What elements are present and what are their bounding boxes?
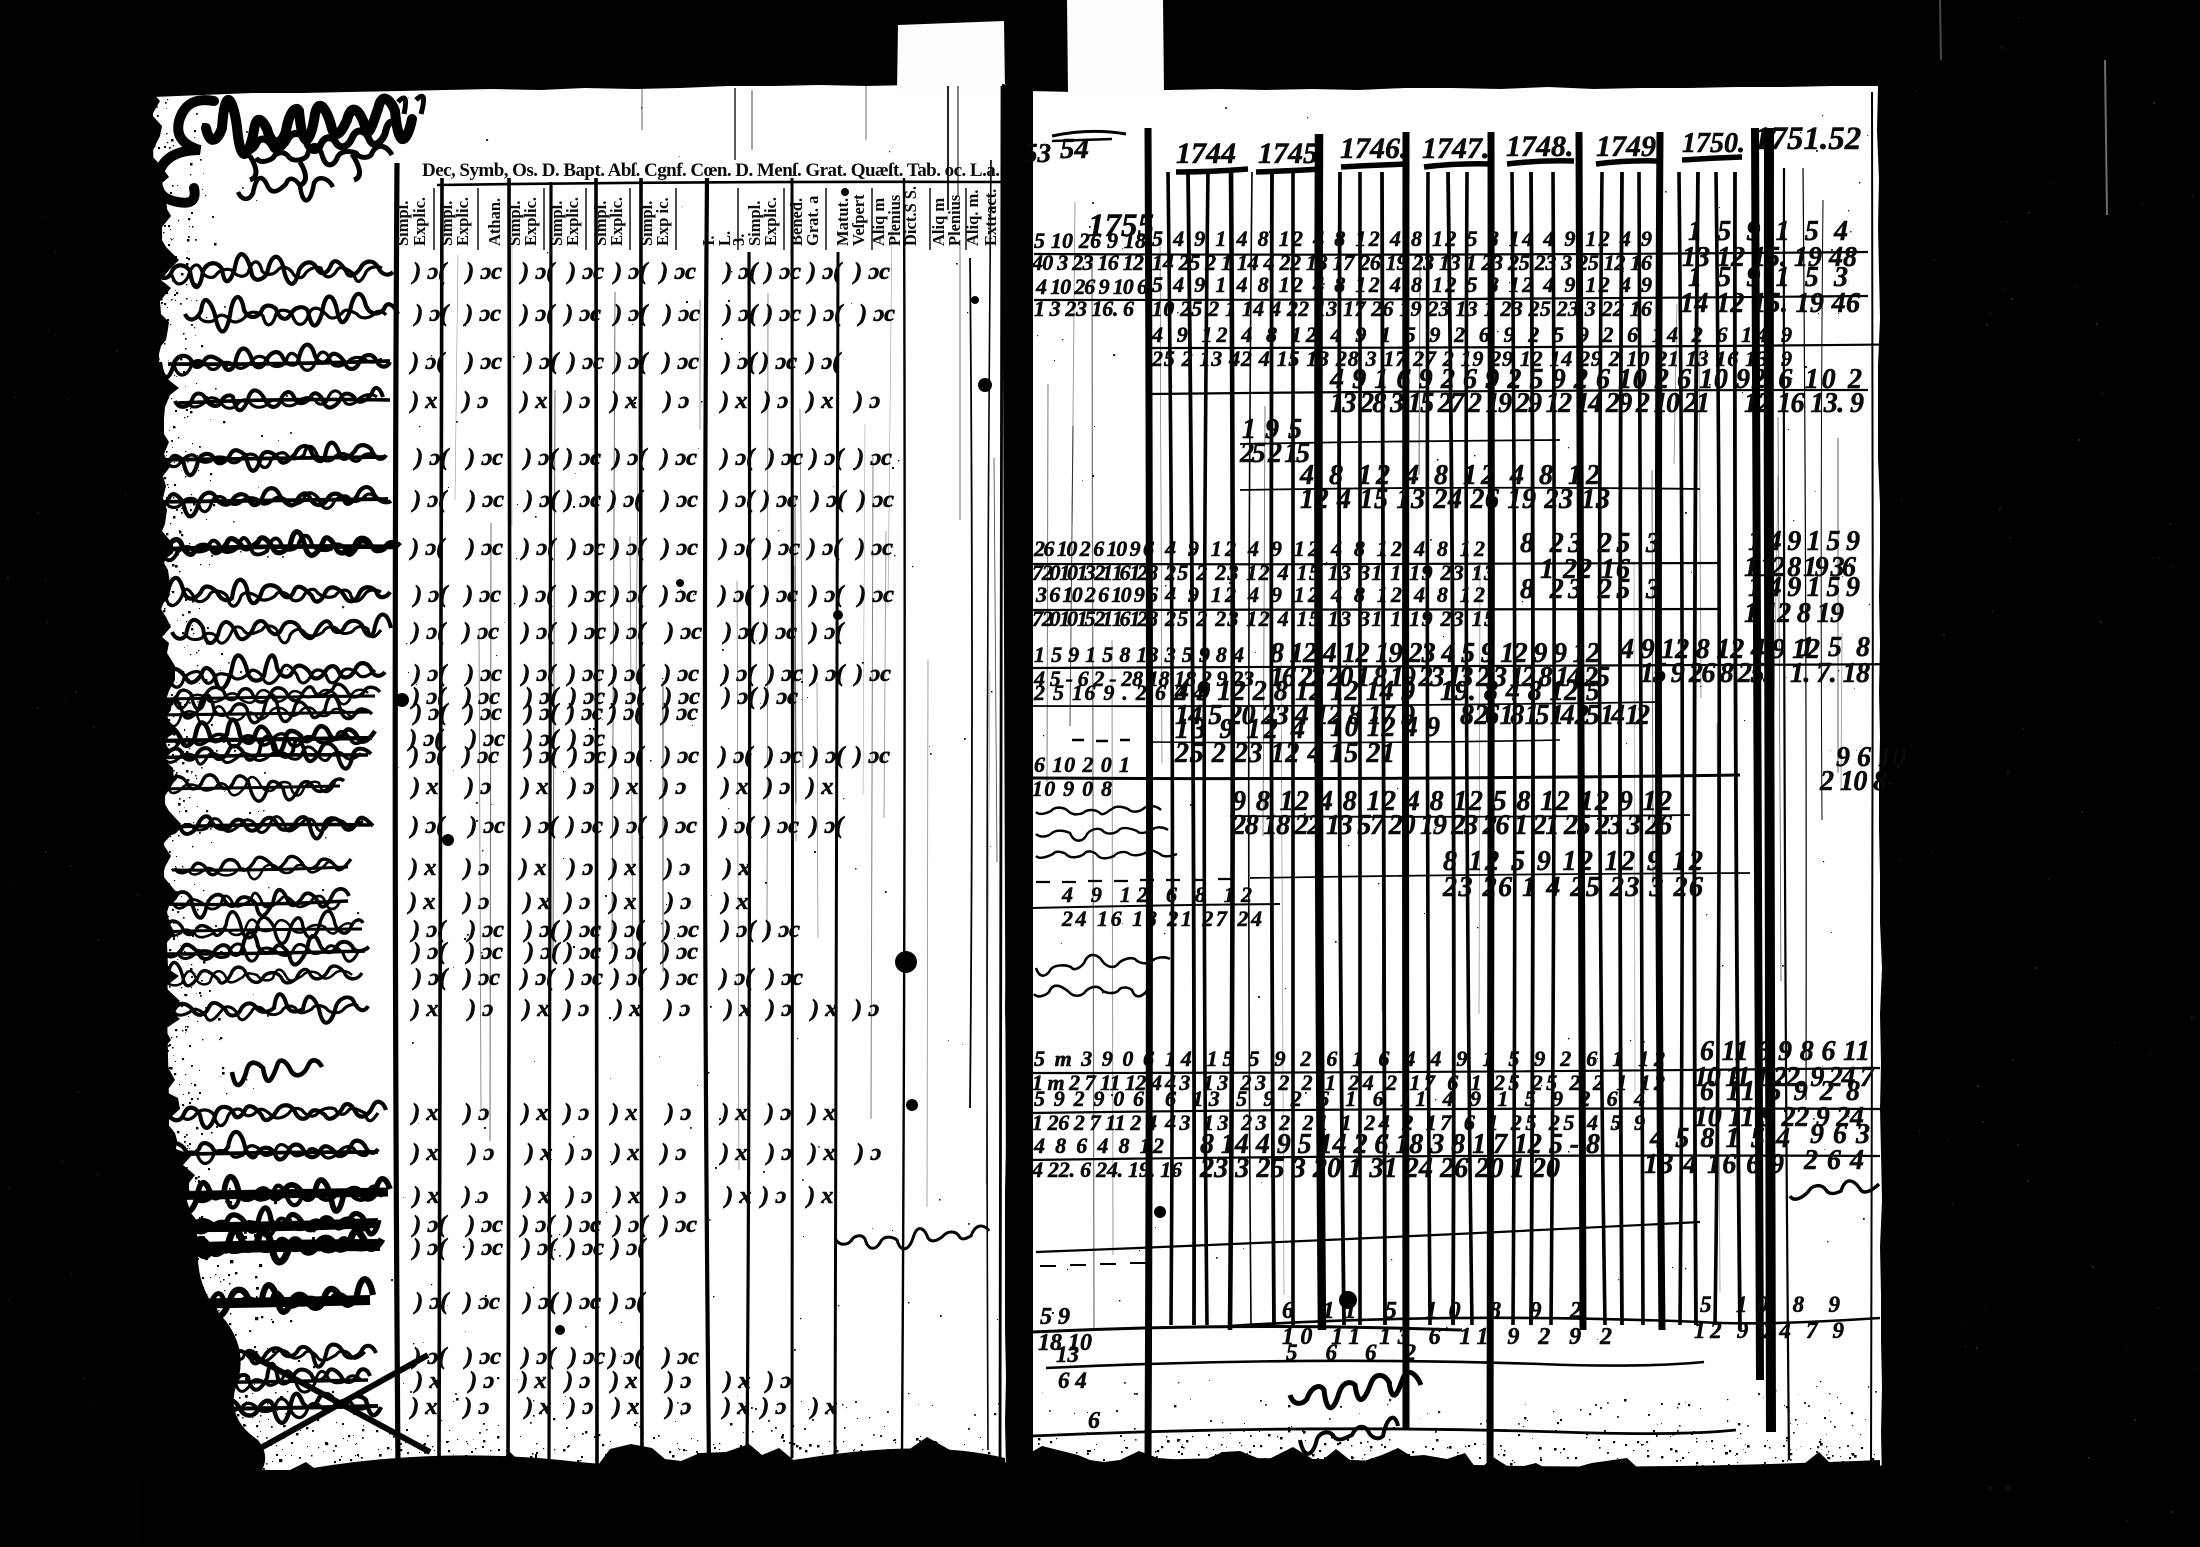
svg-text:1750.: 1750. [1682, 128, 1745, 159]
svg-text:) ɔc: ) ɔc [568, 742, 606, 769]
svg-text:) ɔ(: ) ɔ( [612, 258, 649, 285]
svg-text:) x: ) x [805, 1182, 834, 1209]
svg-text:6 10 2 0 1: 6 10 2 0 1 [1034, 752, 1130, 777]
svg-text:) x: ) x [409, 1393, 438, 1420]
svg-text:) ɔ(: ) ɔ( [607, 486, 644, 513]
svg-text:) ɔ(: ) ɔ( [612, 300, 649, 327]
svg-text:) ɔ: ) ɔ [461, 1182, 488, 1209]
svg-text:28 18 22 13 57 20 19 23: 28 18 22 13 57 20 19 23 26 1 21 25 23 3 … [1231, 810, 1672, 841]
svg-text:) ɔ: ) ɔ [765, 995, 792, 1022]
svg-text:) x: ) x [612, 1182, 641, 1209]
svg-text:) ɔ: ) ɔ [462, 888, 489, 915]
svg-text:) ɔc: ) ɔc [461, 742, 499, 769]
svg-text:) ɔc: ) ɔc [566, 348, 604, 375]
svg-text:) x: ) x [523, 1393, 552, 1420]
svg-text:) ɔ(: ) ɔ( [809, 660, 846, 687]
svg-text:) x: ) x [411, 1182, 440, 1209]
svg-text:5 m 3 9 0 6: 5 m 3 9 0 6 [1034, 1046, 1154, 1071]
svg-text:) ɔ(: ) ɔ( [717, 742, 754, 769]
svg-text:6 11 5 10 8 9 2: 6 11 5 10 8 9 2 [1282, 1298, 1582, 1324]
svg-text:) x: ) x [805, 773, 834, 800]
svg-text:) ɔ(: ) ɔ( [519, 581, 556, 608]
svg-text:) ɔc: ) ɔc [659, 1211, 697, 1238]
svg-text:) ɔc: ) ɔc [467, 812, 505, 839]
svg-text:) x: ) x [809, 995, 838, 1022]
svg-text:) ɔ(: ) ɔ( [809, 742, 846, 769]
svg-text:) ɔ(: ) ɔ( [610, 812, 647, 839]
svg-text:) ɔc: ) ɔc [659, 444, 697, 471]
svg-text:4 9 12 4 9 12 4 8 12 4 8: 4 9 12 4 9 12 4 8 12 4 8 12 [1164, 536, 1485, 561]
svg-text:) ɔc: ) ɔc [760, 581, 798, 608]
svg-text:53: 53 [1024, 138, 1051, 168]
svg-text:) x: ) x [407, 888, 436, 915]
svg-text:) ɔ(: ) ɔ( [721, 683, 758, 710]
svg-text:) ɔ(: ) ɔ( [719, 444, 756, 471]
svg-text:25 2 23 12 4 15 13 31 1 19: 25 2 23 12 4 15 13 31 1 19 23 15 [1164, 606, 1495, 631]
svg-text:) ɔ(: ) ɔ( [722, 618, 759, 645]
svg-text:) x: ) x [719, 1099, 748, 1126]
svg-text:) ɔ(: ) ɔ( [521, 1234, 558, 1261]
svg-text:13: 13 [1056, 1342, 1079, 1367]
svg-text:) ɔ(: ) ɔ( [520, 618, 557, 645]
svg-text:) ɔ(: ) ɔ( [607, 1343, 644, 1370]
svg-text:) ɔ: ) ɔ [764, 1099, 791, 1126]
svg-text:) ɔc: ) ɔc [661, 1343, 699, 1370]
svg-text:4 9 12 4 9 12 4 8 12 4 8: 4 9 12 4 9 12 4 8 12 4 8 12 [1164, 582, 1485, 607]
svg-text:13 28 3 15 27 2 19 29 12: 13 28 3 15 27 2 19 29 12 14 29 2 10 21 [1330, 388, 1710, 419]
svg-text:) x: ) x [410, 773, 439, 800]
svg-text:) ɔ(: ) ɔ( [410, 618, 447, 645]
svg-text:) ɔc: ) ɔc [760, 486, 798, 513]
svg-text:) ɔ: ) ɔ [467, 1367, 494, 1394]
svg-text:) x: ) x [410, 1099, 439, 1126]
svg-text:) ɔ(: ) ɔ( [808, 581, 845, 608]
svg-text:Explic.: Explic. [563, 197, 582, 246]
svg-text:1744: 1744 [1176, 137, 1236, 170]
svg-text:) ɔ(: ) ɔ( [608, 742, 645, 769]
svg-text:) ɔc: ) ɔc [567, 1343, 605, 1370]
svg-text:) ɔ: ) ɔ [466, 995, 493, 1022]
svg-text:12 4 15 13 24 26 19 23 1: 12 4 15 13 24 26 19 23 13 [1300, 484, 1610, 515]
svg-text:5 9: 5 9 [1040, 1304, 1070, 1330]
svg-text:) ɔc: ) ɔc [463, 300, 501, 327]
svg-text:) ɔ(: ) ɔ( [413, 300, 450, 327]
svg-text:) ɔ(: ) ɔ( [612, 348, 649, 375]
svg-text:) ɔc: ) ɔc [464, 258, 502, 285]
svg-text:) ɔc: ) ɔc [463, 1343, 501, 1370]
svg-text:) ɔ(: ) ɔ( [808, 618, 845, 645]
svg-text:) ɔ: ) ɔ [467, 1139, 494, 1166]
svg-text:) ɔc: ) ɔc [660, 534, 698, 561]
svg-text:) ɔ: ) ɔ [563, 1367, 590, 1394]
svg-text:) x: ) x [609, 1099, 638, 1126]
svg-text:) ɔc: ) ɔc [563, 300, 601, 327]
svg-text:) ɔc: ) ɔc [660, 486, 698, 513]
svg-text:) ɔ(: ) ɔ( [718, 534, 755, 561]
svg-text:4 9 12 4 8 12 4 9 1 5 9: 4 9 12 4 8 12 4 9 1 5 9 2 6 9 2 5 9 2 6 … [1151, 322, 1792, 347]
svg-text:) ɔ(: ) ɔ( [722, 258, 759, 285]
svg-text:) ɔ: ) ɔ [761, 387, 788, 414]
svg-text:) ɔ(: ) ɔ( [522, 444, 559, 471]
svg-text:) x: ) x [719, 387, 748, 414]
svg-text:26 10 2 6 10 9 6: 26 10 2 6 10 9 6 [1033, 536, 1154, 561]
svg-text:) ɔ: ) ɔ [562, 995, 589, 1022]
svg-text:) ɔ: ) ɔ [662, 387, 689, 414]
svg-text:) ɔ: ) ɔ [563, 387, 590, 414]
svg-text:) ɔ(: ) ɔ( [609, 1288, 646, 1315]
svg-text:) ɔ(: ) ɔ( [718, 812, 755, 839]
svg-text:) x: ) x [611, 1139, 640, 1166]
svg-text:6 4: 6 4 [1058, 1368, 1087, 1393]
svg-text:) x: ) x [723, 1182, 752, 1209]
svg-text:) ɔ: ) ɔ [566, 854, 593, 881]
svg-text:) ɔ(: ) ɔ( [409, 812, 446, 839]
svg-text:) x: ) x [611, 1393, 640, 1420]
svg-text:1745: 1745 [1258, 137, 1318, 170]
svg-text:1748.: 1748. [1506, 130, 1574, 163]
svg-text:) ɔ(: ) ɔ( [720, 916, 757, 943]
svg-text:) ɔ(: ) ɔ( [808, 444, 845, 471]
svg-text:) ɔc: ) ɔc [658, 258, 696, 285]
svg-text:) ɔc: ) ɔc [763, 300, 801, 327]
svg-text:) ɔ: ) ɔ [567, 773, 594, 800]
svg-text:) ɔc: ) ɔc [760, 683, 798, 710]
svg-text:) ɔ(: ) ɔ( [519, 258, 556, 285]
svg-text:) ɔ: ) ɔ [462, 1393, 489, 1420]
svg-text:Veſpert: Veſpert [849, 194, 868, 246]
svg-text:) ɔ(: ) ɔ( [523, 742, 560, 769]
svg-text:) ɔc: ) ɔc [465, 1234, 503, 1261]
svg-text:) ɔc: ) ɔc [659, 812, 697, 839]
svg-text:) ɔc: ) ɔc [566, 1234, 604, 1261]
svg-text:) ɔc: ) ɔc [759, 618, 797, 645]
svg-text:) x: ) x [409, 387, 438, 414]
svg-text:) ɔc: ) ɔc [660, 938, 698, 965]
svg-text:) ɔ(: ) ɔ( [520, 534, 557, 561]
svg-text:) ɔ: ) ɔ [854, 1139, 881, 1166]
svg-text:2 6 4: 2 6 4 [1803, 1145, 1864, 1176]
svg-text:) ɔc: ) ɔc [661, 348, 699, 375]
svg-text:) ɔ(: ) ɔ( [411, 1343, 448, 1370]
svg-text:) x: ) x [408, 854, 437, 881]
svg-text:) ɔc: ) ɔc [465, 444, 503, 471]
svg-text:) ɔc: ) ɔc [662, 300, 700, 327]
svg-text:) ɔ(: ) ɔ( [808, 812, 845, 839]
svg-text:) ɔ(: ) ɔ( [411, 486, 448, 513]
svg-text:) ɔ(: ) ɔ( [523, 699, 560, 726]
svg-text:6 13 5 9 2 6 1 6 11 4 9: 6 13 5 9 2 6 1 6 11 4 9 1 5 9 2 6 4 [1165, 1086, 1645, 1111]
svg-text:) ɔc: ) ɔc [762, 916, 800, 943]
svg-text:) ɔc: ) ɔc [563, 444, 601, 471]
svg-text:) ɔ(: ) ɔ( [719, 486, 756, 513]
svg-text:) ɔ(: ) ɔ( [520, 1343, 557, 1370]
svg-text:) x: ) x [805, 387, 834, 414]
svg-text:Extract.: Extract. [981, 189, 1000, 246]
svg-text:) ɔ: ) ɔ [462, 1099, 489, 1126]
svg-text:) x: ) x [410, 995, 439, 1022]
svg-text:) ɔ(: ) ɔ( [610, 1234, 647, 1261]
svg-text:) ɔ(: ) ɔ( [413, 444, 450, 471]
svg-text:) x: ) x [721, 1393, 750, 1420]
svg-text:) ɔ: ) ɔ [565, 1182, 592, 1209]
svg-text:) x: ) x [609, 387, 638, 414]
svg-text:10 12 4 9: 10 12 4 9 [1330, 712, 1440, 743]
svg-text:) ɔ(: ) ɔ( [810, 486, 847, 513]
svg-text:) ɔc: ) ɔc [566, 258, 604, 285]
svg-text:) ɔc: ) ɔc [765, 964, 803, 991]
svg-text:Dec, Symb, Os. D. Bapt. Abſ. C: Dec, Symb, Os. D. Bapt. Abſ. Cgnf. Cœn. … [422, 160, 1000, 181]
svg-text:) ɔ(: ) ɔ( [717, 581, 754, 608]
svg-text:) ɔ: ) ɔ [663, 995, 690, 1022]
svg-text:) x: ) x [522, 1182, 551, 1209]
svg-text:) ɔc: ) ɔc [568, 581, 606, 608]
svg-text:) x: ) x [723, 995, 752, 1022]
svg-text:) ɔ: ) ɔ [765, 1139, 792, 1166]
svg-text:13 4 16 6 9: 13 4 16 6 9 [1644, 1149, 1784, 1180]
svg-text:) ɔ(: ) ɔ( [411, 1234, 448, 1261]
svg-text:1 3 23 16. 6: 1 3 23 16. 6 [1034, 296, 1134, 321]
svg-text:) ɔc: ) ɔc [563, 938, 601, 965]
svg-text:) ɔ: ) ɔ [664, 1367, 691, 1394]
svg-text:) ɔc: ) ɔc [567, 534, 605, 561]
svg-text:) ɔc: ) ɔc [565, 699, 603, 726]
svg-text:) ɔ(: ) ɔ( [413, 1288, 450, 1315]
svg-text:) x: ) x [613, 995, 642, 1022]
svg-text:) ɔ: ) ɔ [464, 773, 491, 800]
svg-text:2 10 8-: 2 10 8- [1819, 766, 1896, 797]
svg-text:) ɔ(: ) ɔ( [411, 938, 448, 965]
svg-text:1 5 9 1 5 8 13 3 5 9 8 4: 1 5 9 1 5 8 13 3 5 9 8 4 [1034, 642, 1244, 667]
svg-text:) ɔ(: ) ɔ( [718, 964, 755, 991]
svg-text:) ɔc: ) ɔc [463, 581, 501, 608]
svg-text:Athan.: Athan. [485, 198, 504, 246]
svg-text:) ɔ(: ) ɔ( [610, 964, 647, 991]
svg-text:) ɔ: ) ɔ [663, 854, 690, 881]
svg-text:) ɔ: ) ɔ [462, 854, 489, 881]
svg-text:) ɔ: ) ɔ [852, 995, 879, 1022]
svg-text:) ɔ(: ) ɔ( [806, 258, 843, 285]
svg-text:) ɔc: ) ɔc [664, 618, 702, 645]
svg-text:) x: ) x [524, 1139, 553, 1166]
svg-text:) ɔ(: ) ɔ( [610, 534, 647, 561]
svg-text:) ɔc: ) ɔc [464, 348, 502, 375]
svg-text:) ɔ(: ) ɔ( [522, 1288, 559, 1315]
svg-text:) ɔ(: ) ɔ( [409, 348, 446, 375]
svg-text:) ɔc: ) ɔc [461, 618, 499, 645]
svg-text:) ɔ(: ) ɔ( [524, 938, 561, 965]
svg-text:) ɔc: ) ɔc [568, 618, 606, 645]
svg-text:Explic.: Explic. [761, 197, 780, 246]
svg-text:8 23 25 3: 8 23 25 3 [1520, 574, 1660, 605]
svg-text:) x: ) x [722, 1367, 751, 1394]
svg-text:) ɔc: ) ɔc [855, 534, 893, 561]
svg-text:) ɔc: ) ɔc [466, 486, 504, 513]
svg-text:) ɔc: ) ɔc [565, 812, 603, 839]
svg-text:) ɔ(: ) ɔ( [806, 534, 843, 561]
svg-text:3 6 10 2 6 10 9 6: 3 6 10 2 6 10 9 6 [1035, 582, 1158, 607]
svg-text:Explic.: Explic. [453, 197, 472, 246]
svg-text:) x: ) x [410, 1139, 439, 1166]
svg-text:12 9 24 7 9: 12 9 24 7 9 [1694, 1318, 1845, 1343]
svg-text:) ɔc: ) ɔc [763, 258, 801, 285]
svg-text:) ɔc: ) ɔc [660, 964, 698, 991]
svg-text:6: 6 [1088, 1408, 1100, 1434]
svg-text:) ɔ(: ) ɔ( [807, 300, 844, 327]
svg-text:) x: ) x [522, 888, 551, 915]
svg-text:15 9 26 8 25.: 15 9 26 8 25. [1640, 658, 1770, 689]
svg-text:) ɔ(: ) ɔ( [611, 444, 648, 471]
svg-text:1749: 1749 [1596, 130, 1656, 163]
svg-text:) ɔ: ) ɔ [759, 1393, 786, 1420]
svg-text:40 3 23 16 12: 40 3 23 16 12 [1031, 250, 1144, 275]
svg-text:) ɔ(: ) ɔ( [523, 348, 560, 375]
svg-text:7 20 10 15 21 16 12 8: 7 20 10 15 21 16 12 8 [1032, 606, 1158, 631]
svg-text:) ɔ(: ) ɔ( [409, 742, 446, 769]
svg-text:4 22. 6 24. 19. 16: 4 22. 6 24. 19. 16 [1031, 1157, 1182, 1182]
svg-text:) ɔ: ) ɔ [664, 1099, 691, 1126]
svg-text:12 16 13. 9: 12 16 13. 9 [1744, 388, 1864, 419]
svg-text:Explic.: Explic. [410, 197, 429, 246]
svg-text:) ɔ: ) ɔ [562, 1099, 589, 1126]
svg-text:) x: ) x [518, 1367, 547, 1394]
svg-text:5 9 2 9 0 6: 5 9 2 9 0 6 [1034, 1086, 1144, 1111]
svg-text:Explic.: Explic. [607, 197, 626, 246]
svg-text:4 8 6 4 8 12: 4 8 6 4 8 12 [1033, 1133, 1164, 1158]
svg-text:) x: ) x [809, 1393, 838, 1420]
svg-text:) ɔ: ) ɔ [659, 1139, 686, 1166]
svg-text:14 12 15. 19 46: 14 12 15. 19 46 [1680, 288, 1860, 319]
svg-text:) ɔc: ) ɔc [565, 964, 603, 991]
svg-text:54: 54 [1060, 133, 1089, 165]
svg-text:) x: ) x [413, 1367, 442, 1394]
svg-text:1. 7. 18: 1. 7. 18 [1790, 658, 1870, 689]
svg-text:) x: ) x [807, 1099, 836, 1126]
svg-text:) ɔc: ) ɔc [856, 486, 894, 513]
svg-text:) ɔ: ) ɔ [461, 387, 488, 414]
svg-text:) ɔ: ) ɔ [764, 1367, 791, 1394]
svg-text:) ɔ(: ) ɔ( [722, 300, 759, 327]
svg-text:1 26 2 7 11 2 4: 1 26 2 7 11 2 4 [1032, 1110, 1157, 1135]
svg-text:8 26 18 15 14 25 14 12: 8 26 18 15 14 25 14 12 [1460, 700, 1650, 731]
svg-text:) ɔ(: ) ɔ( [519, 300, 556, 327]
svg-text:) x: ) x [520, 773, 549, 800]
svg-text:) x: ) x [720, 888, 749, 915]
svg-text:) ɔ: ) ɔ [566, 1393, 593, 1420]
svg-text:) x: ) x [719, 1139, 748, 1166]
svg-text:Explic.: Explic. [521, 197, 540, 246]
svg-text:) ɔc: ) ɔc [563, 1288, 601, 1315]
svg-text:) x: ) x [722, 854, 751, 881]
svg-text:) ɔc: ) ɔc [464, 699, 502, 726]
svg-text:14 15 5 9 2 6 1 6 4 4 9: 14 15 5 9 2 6 1 6 4 4 9 1 5 9 2 6 1 12 [1165, 1046, 1665, 1071]
svg-text:) ɔ: ) ɔ [664, 888, 691, 915]
svg-text:Dict.S S.: Dict.S S. [901, 186, 920, 246]
svg-text:) ɔc: ) ɔc [765, 444, 803, 471]
svg-text:) x: ) x [519, 387, 548, 414]
svg-text:) x: ) x [520, 1099, 549, 1126]
svg-text:) ɔc: ) ɔc [465, 534, 503, 561]
svg-text:) ɔc: ) ɔc [764, 742, 802, 769]
svg-text:) ɔ: ) ɔ [759, 1182, 786, 1209]
svg-text:) ɔ(: ) ɔ( [610, 618, 647, 645]
svg-text:1746.: 1746. [1340, 132, 1408, 165]
svg-text:) ɔc: ) ɔc [660, 699, 698, 726]
svg-text:) ɔ(: ) ɔ( [412, 964, 449, 991]
svg-text:) ɔ(: ) ɔ( [412, 581, 449, 608]
svg-text:) ɔc: ) ɔc [465, 938, 503, 965]
svg-text:) ɔ: ) ɔ [664, 1393, 691, 1420]
svg-text:) ɔ(: ) ɔ( [805, 348, 842, 375]
svg-text:) ɔ(: ) ɔ( [411, 258, 448, 285]
svg-text:23 3 25 3 20 1 31 24 26: 23 3 25 3 20 1 31 24 26 20 1 20 [1199, 1153, 1560, 1184]
svg-text:1 12 8 19: 1 12 8 19 [1744, 598, 1844, 629]
svg-text:) ɔc: ) ɔc [462, 964, 500, 991]
svg-text:) ɔ(: ) ɔ( [519, 964, 556, 991]
svg-text:) x: ) x [521, 995, 550, 1022]
svg-text:) ɔc: ) ɔc [759, 348, 797, 375]
svg-text:) ɔc: ) ɔc [857, 300, 895, 327]
svg-text:Grat. a: Grat. a [803, 196, 822, 246]
svg-text:) ɔc: ) ɔc [462, 1288, 500, 1315]
svg-text:24 16 18 21 27 24: 24 16 18 21 27 24 [1061, 906, 1262, 931]
svg-text:) x: ) x [610, 773, 639, 800]
svg-text:) ɔ(: ) ɔ( [610, 581, 647, 608]
svg-text:) ɔ: ) ɔ [659, 1182, 686, 1209]
svg-text:1747.: 1747. [1422, 132, 1490, 165]
svg-text:Exp ic.: Exp ic. [653, 197, 672, 246]
svg-text:) x: ) x [807, 1139, 836, 1166]
svg-text:) ɔ: ) ɔ [563, 888, 590, 915]
svg-text:) ɔc: ) ɔc [661, 742, 699, 769]
svg-text:) x: ) x [720, 773, 749, 800]
svg-text:) x: ) x [518, 854, 547, 881]
svg-text:) ɔc: ) ɔc [563, 486, 601, 513]
svg-text:) ɔ(: ) ɔ( [412, 699, 449, 726]
svg-text:Aliq. m.: Aliq. m. [963, 190, 982, 246]
svg-text:10 25 2 1 14 4 22 13 17 26: 10 25 2 1 14 4 22 13 17 26 19 23 13 1 23… [1152, 296, 1652, 321]
svg-text:) ɔ: ) ɔ [853, 387, 880, 414]
svg-text:) ɔ(: ) ɔ( [609, 938, 646, 965]
svg-text:) ɔ(: ) ɔ( [409, 534, 446, 561]
svg-text:) ɔ: ) ɔ [565, 1139, 592, 1166]
svg-text:) ɔc: ) ɔc [852, 258, 890, 285]
svg-text:) x: ) x [609, 1367, 638, 1394]
